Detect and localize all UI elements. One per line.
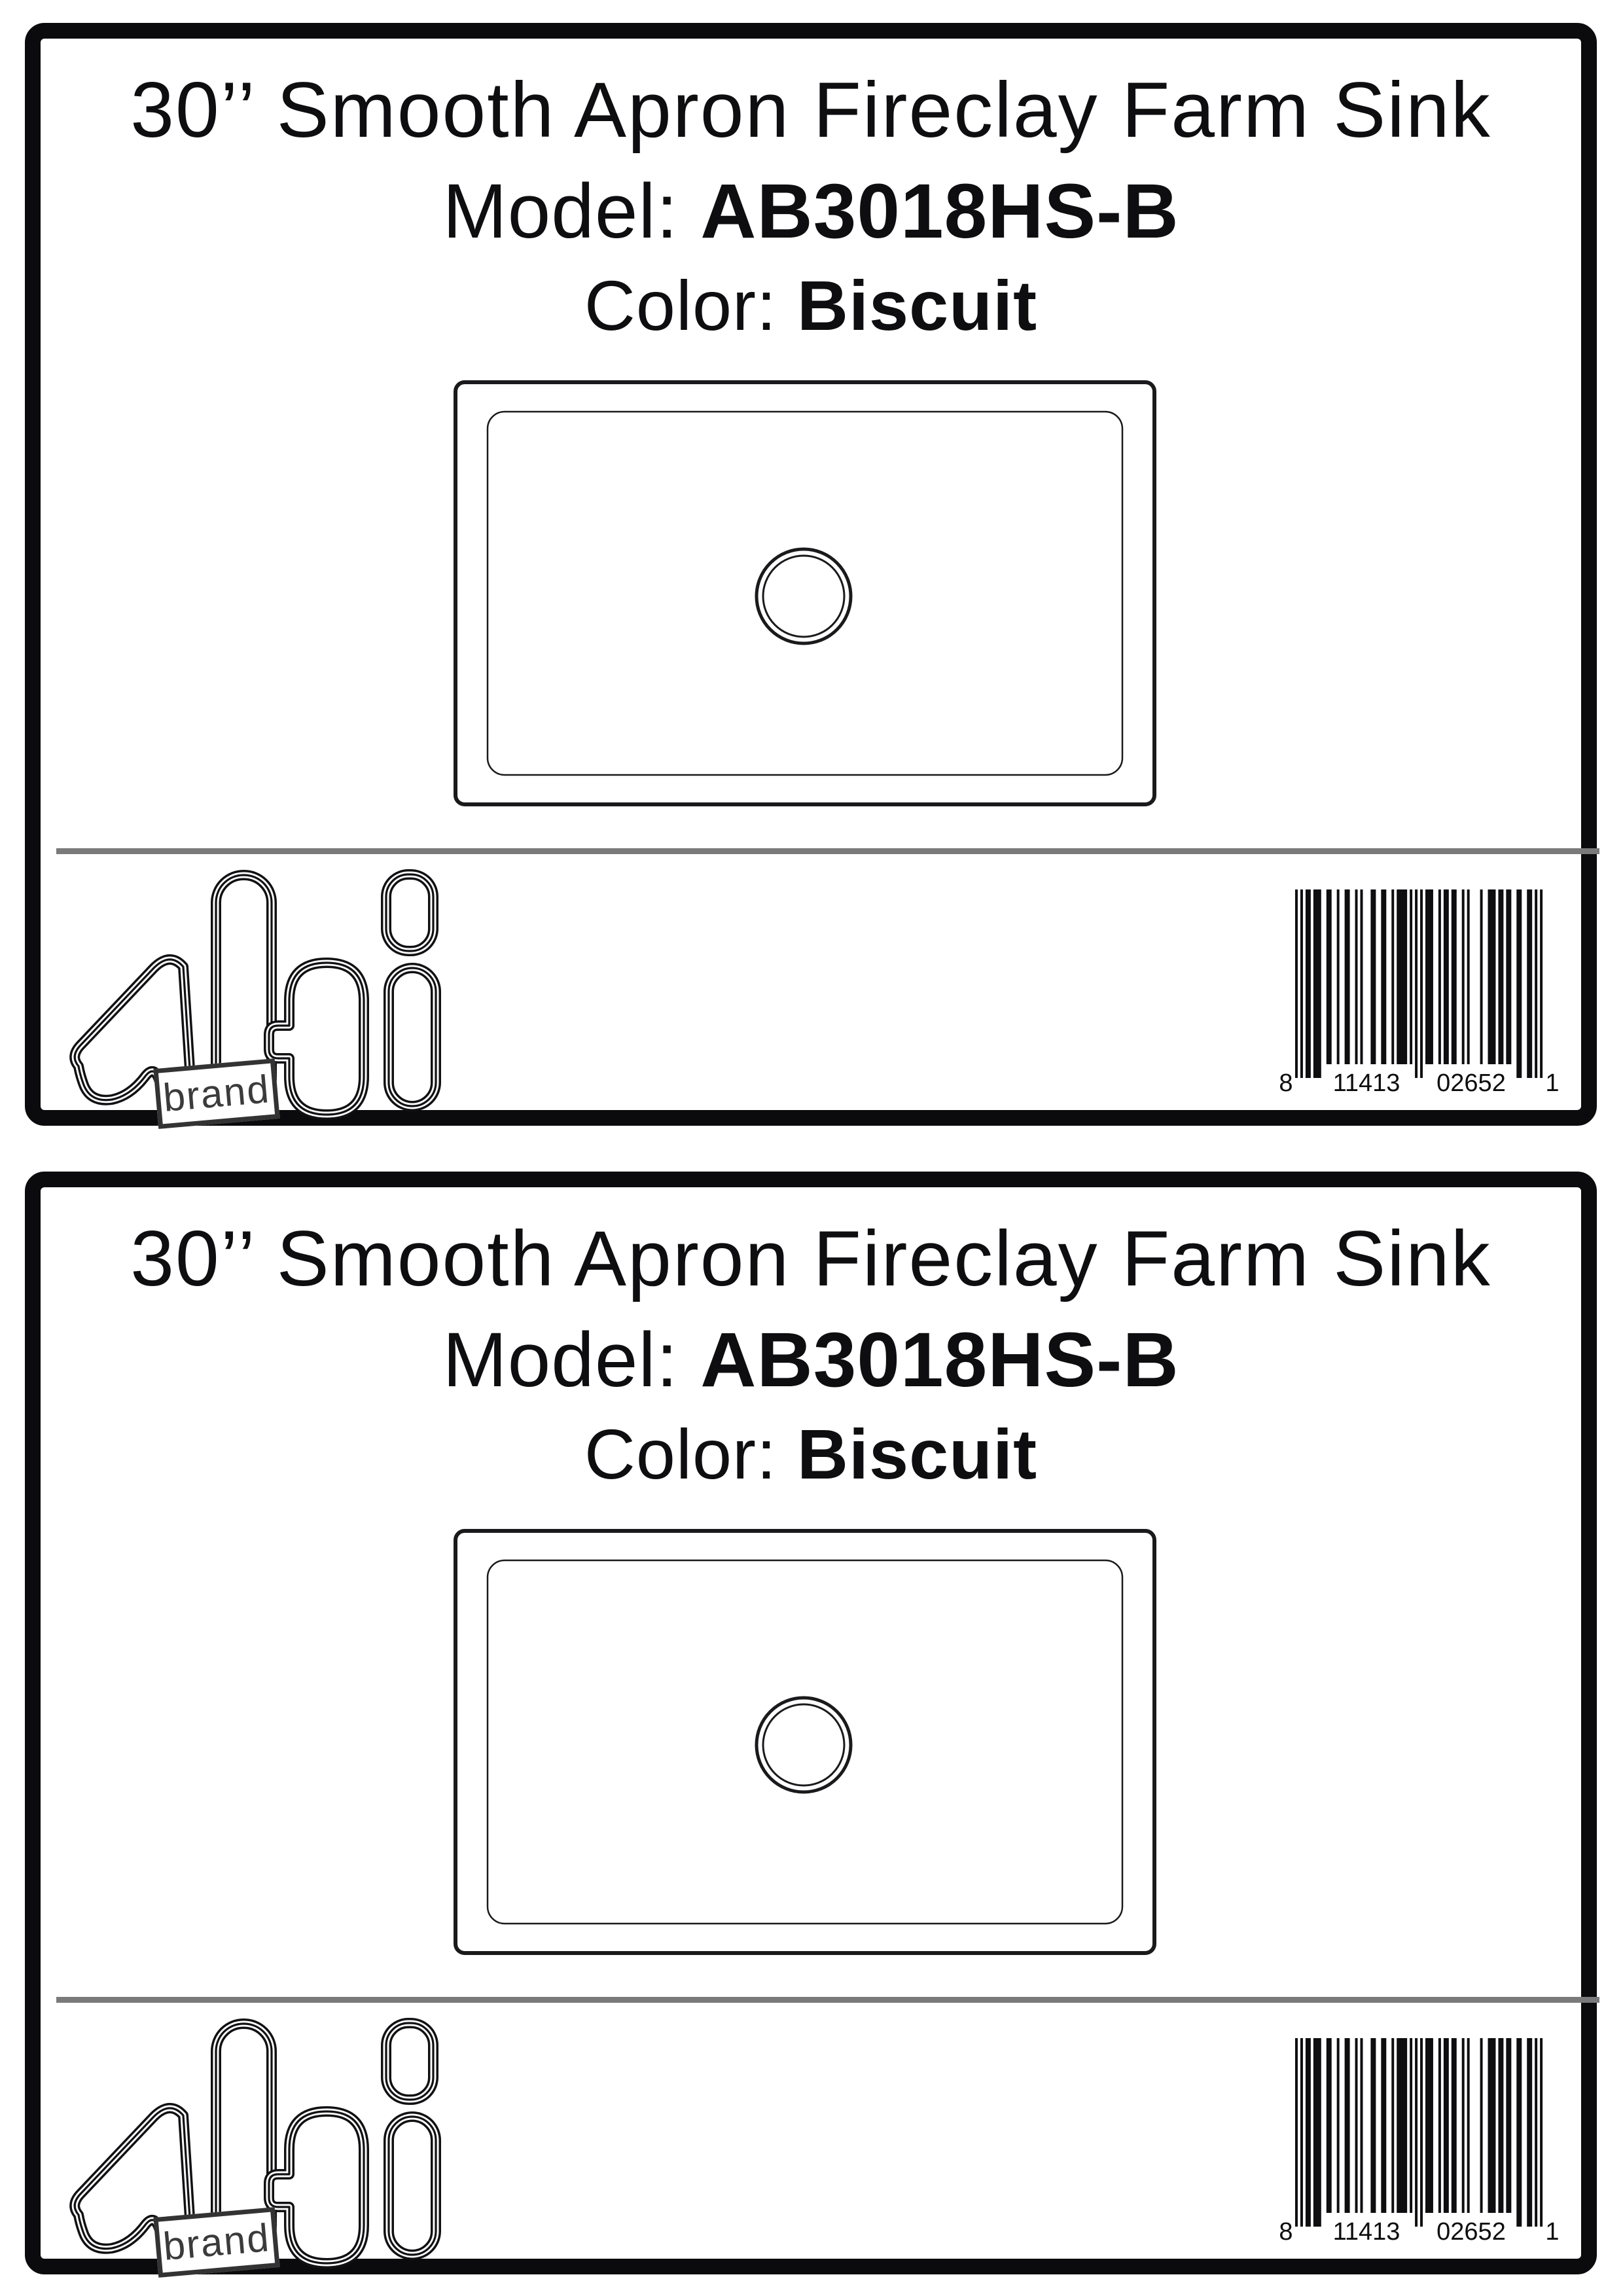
- barcode-bar: [1438, 889, 1441, 1064]
- barcode-bars: [1295, 889, 1543, 1078]
- barcode-bar: [1415, 2038, 1418, 2227]
- barcode-bar: [1361, 2038, 1363, 2213]
- barcode-bar: [1516, 2038, 1522, 2227]
- barcode-bar: [1300, 2038, 1303, 2227]
- barcode-digit-system: 8: [1279, 2218, 1293, 2246]
- barcode-bar: [1420, 889, 1423, 1078]
- barcode-bar: [1452, 889, 1457, 1064]
- spacer: [679, 168, 701, 255]
- brand-stamp: brand: [153, 2207, 279, 2278]
- barcode-bar: [1506, 889, 1511, 1064]
- model-label: Model:: [442, 168, 678, 255]
- barcode-bar: [1327, 2038, 1332, 2213]
- logo-letter-f: [269, 2111, 364, 2263]
- spacer: [777, 266, 797, 345]
- sink-basin-outline: [488, 1560, 1122, 1924]
- barcode-bar: [1300, 889, 1303, 1078]
- barcode-bar: [1444, 889, 1449, 1064]
- barcode-bar: [1527, 889, 1532, 1078]
- sink-drawing: [454, 1529, 1156, 1955]
- barcode-digits-left: 11413: [1333, 1069, 1400, 1097]
- barcode-digit-check: 1: [1545, 2218, 1559, 2246]
- barcode-digits-right: 02652: [1436, 1069, 1506, 1097]
- barcode-bar: [1498, 2038, 1503, 2213]
- sink-basin-outline: [488, 412, 1122, 775]
- barcode-bar: [1391, 889, 1394, 1064]
- drain-icon: [757, 1698, 851, 1792]
- model-label: Model:: [442, 1317, 678, 1403]
- barcode-digits-left: 11413: [1333, 2218, 1400, 2246]
- color-label: Color:: [584, 266, 777, 345]
- product-title: 30’’ Smooth Apron Fireclay Farm Sink: [41, 1213, 1581, 1304]
- brand-stamp-label: brand: [162, 1069, 272, 1118]
- barcode-bars: [1295, 2038, 1543, 2227]
- barcode-digit-system: 8: [1279, 1069, 1293, 1097]
- barcode-bar: [1345, 2038, 1350, 2213]
- barcode-bar: [1381, 2038, 1386, 2213]
- product-title: 30’’ Smooth Apron Fireclay Farm Sink: [41, 65, 1581, 155]
- barcode-bar: [1345, 889, 1350, 1064]
- color-value: Biscuit: [797, 266, 1037, 345]
- color-value: Biscuit: [797, 1414, 1037, 1494]
- model-value: AB3018HS-B: [700, 168, 1179, 255]
- barcode-bar: [1397, 2038, 1407, 2213]
- barcode-bar: [1535, 889, 1537, 1078]
- barcode-bar: [1391, 2038, 1394, 2213]
- spacer: [777, 1414, 797, 1494]
- barcode-bar: [1488, 889, 1496, 1064]
- drain-inner-ring: [763, 1704, 844, 1785]
- sink-outline: [455, 1531, 1154, 1953]
- drain-icon: [757, 549, 851, 643]
- barcode: 8 11413 02652 1: [1240, 887, 1580, 1103]
- barcode-bar: [1327, 889, 1332, 1064]
- barcode-bar: [1337, 889, 1340, 1064]
- sink-outline: [455, 382, 1154, 804]
- barcode-bar: [1420, 2038, 1423, 2227]
- barcode-bar: [1488, 2038, 1496, 2213]
- barcode-bar: [1381, 889, 1386, 1064]
- barcode-bar: [1467, 2038, 1470, 2213]
- divider-line: [56, 848, 1599, 854]
- barcode-bar: [1480, 889, 1483, 1064]
- barcode-bar: [1306, 889, 1311, 1078]
- barcode-bar: [1355, 889, 1358, 1064]
- barcode-bar: [1355, 2038, 1358, 2213]
- barcode-bar: [1397, 889, 1407, 1064]
- barcode-bar: [1527, 2038, 1532, 2227]
- model-line: Model: AB3018HS-B: [41, 167, 1581, 256]
- barcode-bar: [1540, 889, 1543, 1078]
- product-label: 30’’ Smooth Apron Fireclay Farm Sink Mod…: [25, 1172, 1597, 2274]
- barcode-bar: [1295, 2038, 1298, 2227]
- barcode-bar: [1425, 2038, 1433, 2213]
- barcode-digits-right: 02652: [1436, 2218, 1506, 2246]
- barcode-bar: [1444, 2038, 1449, 2213]
- divider-line: [56, 1997, 1599, 2003]
- barcode-bar: [1370, 2038, 1376, 2213]
- barcode-bar: [1438, 2038, 1441, 2213]
- sink-drawing: [454, 380, 1156, 806]
- barcode-bar: [1467, 889, 1470, 1064]
- barcode-bar: [1516, 889, 1522, 1078]
- barcode-bar: [1370, 889, 1376, 1064]
- barcode-digit-check: 1: [1545, 1069, 1559, 1097]
- barcode-bar: [1313, 2038, 1321, 2227]
- barcode-bar: [1452, 2038, 1457, 2213]
- spacer: [679, 1317, 701, 1403]
- product-label: 30’’ Smooth Apron Fireclay Farm Sink Mod…: [25, 23, 1597, 1126]
- model-line: Model: AB3018HS-B: [41, 1316, 1581, 1405]
- barcode-bar: [1462, 2038, 1465, 2213]
- barcode-bar: [1337, 2038, 1340, 2213]
- color-line: Color: Biscuit: [41, 1413, 1581, 1495]
- barcode-bar: [1425, 889, 1433, 1064]
- brand-stamp: brand: [153, 1058, 279, 1129]
- barcode-bar: [1506, 2038, 1511, 2213]
- logo-letter-i-body: [389, 2117, 436, 2255]
- logo-letter-f: [269, 963, 364, 1115]
- barcode-bar: [1306, 2038, 1311, 2227]
- barcode-bar: [1498, 889, 1503, 1064]
- color-label: Color:: [584, 1414, 777, 1494]
- logo-letter-i-body: [389, 968, 436, 1106]
- barcode-bar: [1540, 2038, 1543, 2227]
- model-value: AB3018HS-B: [700, 1317, 1179, 1403]
- barcode-bar: [1295, 889, 1298, 1078]
- barcode-bar: [1415, 889, 1418, 1078]
- barcode-bar: [1313, 889, 1321, 1078]
- drain-inner-ring: [763, 556, 844, 637]
- brand-stamp-label: brand: [162, 2218, 272, 2267]
- color-line: Color: Biscuit: [41, 264, 1581, 346]
- barcode-bar: [1462, 889, 1465, 1064]
- logo-letter-i-dot: [386, 874, 433, 951]
- barcode-bar: [1410, 2038, 1412, 2213]
- barcode-bar: [1535, 2038, 1537, 2227]
- barcode-bar: [1480, 2038, 1483, 2213]
- barcode-bar: [1410, 889, 1412, 1064]
- barcode-bar: [1361, 889, 1363, 1064]
- logo-letter-i-dot: [386, 2023, 433, 2100]
- barcode: 8 11413 02652 1: [1240, 2036, 1580, 2251]
